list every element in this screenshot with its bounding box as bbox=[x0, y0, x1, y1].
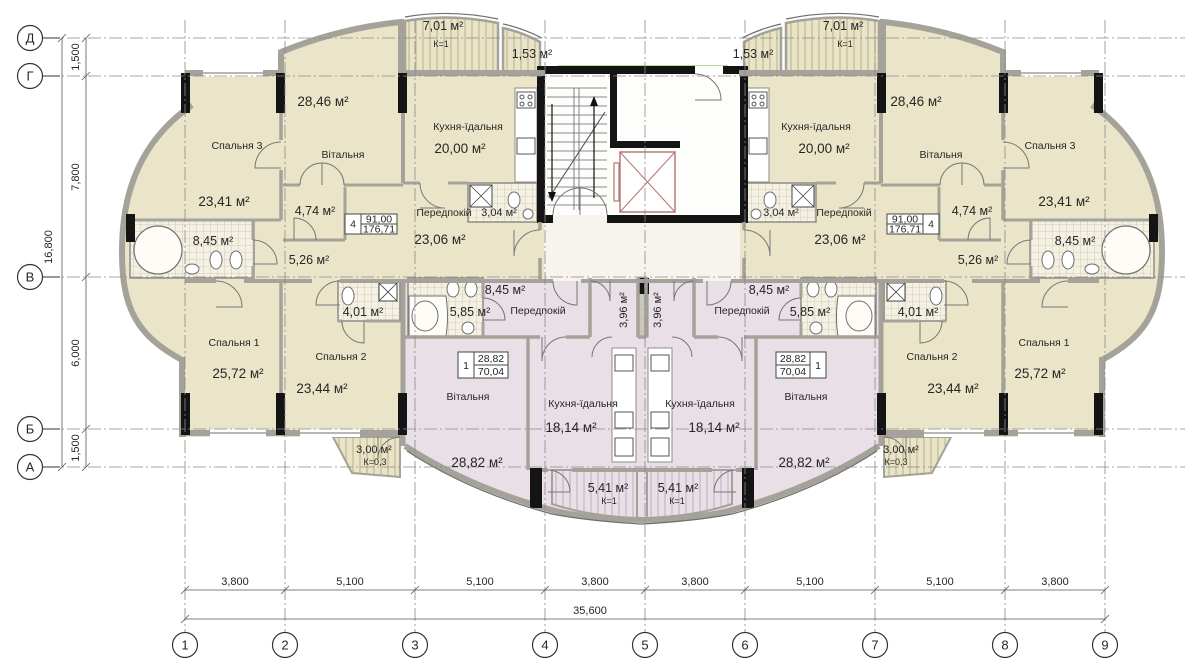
storage-area-r: 4,74 м² bbox=[952, 204, 993, 218]
bedroom1-area-r: 25,72 м² bbox=[1014, 366, 1066, 381]
bath-area-r: 8,45 м² bbox=[1055, 234, 1096, 248]
dim-col-2: 5,100 bbox=[336, 576, 364, 588]
t1-bath-area-l: 5,85 м² bbox=[450, 305, 491, 319]
balcony-large-k-r: К=1 bbox=[837, 39, 853, 49]
balcony-rear-k-r: К=0,3 bbox=[884, 457, 907, 467]
unit4-total: 176,71 bbox=[363, 224, 395, 236]
storage-area-l: 4,74 м² bbox=[295, 204, 336, 218]
balcony-small-area-r: 1,53 м² bbox=[733, 47, 774, 61]
axis-label-a: А bbox=[26, 460, 35, 475]
t1-hall-area-r: 8,45 м² bbox=[749, 283, 790, 297]
t1-living-name-l: Вітальня bbox=[447, 391, 490, 403]
unit4-number: 4 bbox=[350, 219, 356, 231]
corridor-area-r: 5,26 м² bbox=[958, 253, 999, 267]
hall-name-l: Передпокій bbox=[416, 207, 471, 219]
entrance-lobby bbox=[544, 223, 740, 281]
dim-row-2: 7,800 bbox=[70, 163, 82, 191]
kitchen-area-r: 20,00 м² bbox=[798, 141, 850, 156]
t1-corridor-area-r: 3,96 м² bbox=[652, 292, 664, 328]
bedroom2-area-l: 23,44 м² bbox=[296, 381, 348, 396]
axis-label-5: 5 bbox=[641, 638, 648, 653]
kitchen-name-r: Кухня-їдальня bbox=[781, 121, 851, 133]
living-area-r: 28,46 м² bbox=[890, 94, 942, 109]
dim-row-4: 1,500 bbox=[70, 434, 82, 462]
axis-label-3: 3 bbox=[411, 638, 418, 653]
unit1-living: 28,82 bbox=[478, 353, 504, 365]
dim-col-5: 3,800 bbox=[681, 576, 709, 588]
bedroom1-area-l: 25,72 м² bbox=[212, 366, 264, 381]
axis-label-9: 9 bbox=[1101, 638, 1108, 653]
dim-col-8: 3,800 bbox=[1041, 576, 1069, 588]
kitchen-area-l: 20,00 м² bbox=[434, 141, 486, 156]
t1-balcony-area-r: 5,41 м² bbox=[658, 481, 699, 495]
t1-hall-name-l: Передпокій bbox=[510, 305, 565, 317]
living-area-l: 28,46 м² bbox=[297, 94, 349, 109]
unit1-number: 1 bbox=[463, 360, 469, 372]
bath2-area-l: 4,01 м² bbox=[343, 305, 384, 319]
axis-label-g: Г bbox=[26, 69, 33, 84]
axis-label-b: Б bbox=[26, 422, 35, 437]
axis-label-8: 8 bbox=[1001, 638, 1008, 653]
t1-kitchen-name-l: Кухня-їдальня bbox=[548, 398, 618, 410]
balcony-large-area-r: 7,01 м² bbox=[823, 19, 864, 33]
t1-hall-area-l: 8,45 м² bbox=[485, 283, 526, 297]
bedroom3-area-r: 23,41 м² bbox=[1038, 194, 1090, 209]
floor-plan-sheet: Д Г В Б А 1 2 3 4 5 6 7 8 9 1,500 7,800 … bbox=[0, 0, 1200, 661]
unit4-number: 4 bbox=[928, 219, 934, 231]
dim-col-6: 5,100 bbox=[796, 576, 824, 588]
bedroom1-name-r: Спальня 1 bbox=[1019, 337, 1070, 349]
bath-area-l: 8,45 м² bbox=[193, 234, 234, 248]
t1-bath-area-r: 5,85 м² bbox=[790, 305, 831, 319]
bedroom3-name-r: Спальня 3 bbox=[1025, 140, 1076, 152]
unit1-total: 70,04 bbox=[478, 366, 504, 378]
dim-col-3: 5,100 bbox=[466, 576, 494, 588]
axis-label-1: 1 bbox=[181, 638, 188, 653]
dim-col-7: 5,100 bbox=[926, 576, 954, 588]
balcony-small-area-l: 1,53 м² bbox=[512, 47, 553, 61]
axis-label-2: 2 bbox=[281, 638, 288, 653]
living-name-r: Вітальня bbox=[920, 149, 963, 161]
unit4-total: 176,71 bbox=[889, 224, 921, 236]
bath2-area-r: 4,01 м² bbox=[898, 305, 939, 319]
balcony-rear-k-l: К=0,3 bbox=[363, 457, 386, 467]
floor-plan-drawing: Д Г В Б А 1 2 3 4 5 6 7 8 9 1,500 7,800 … bbox=[0, 0, 1200, 661]
dim-col-4: 3,800 bbox=[581, 576, 609, 588]
balcony-large-area-l: 7,01 м² bbox=[423, 19, 464, 33]
dim-row-1: 1,500 bbox=[70, 43, 82, 71]
t1-living-name-r: Вітальня bbox=[785, 391, 828, 403]
t1-living-area-l: 28,82 м² bbox=[451, 455, 503, 470]
balcony-rear-area-l: 3,00 м² bbox=[356, 444, 392, 456]
bedroom3-name-l: Спальня 3 bbox=[212, 140, 263, 152]
wc-area-l: 3,04 м² bbox=[481, 207, 517, 219]
axis-label-4: 4 bbox=[541, 638, 548, 653]
bedroom2-name-r: Спальня 2 bbox=[907, 351, 958, 363]
bedroom2-area-r: 23,44 м² bbox=[927, 381, 979, 396]
dim-row-3: 6,000 bbox=[70, 339, 82, 367]
t1-balcony-area-l: 5,41 м² bbox=[588, 481, 629, 495]
elevator-shaft bbox=[614, 152, 675, 212]
t1-balcony-k-r: К=1 bbox=[669, 496, 685, 506]
dim-col-1: 3,800 bbox=[221, 576, 249, 588]
unit1-number: 1 bbox=[815, 360, 821, 372]
unit1-total: 70,04 bbox=[780, 366, 806, 378]
t1-kitchen-name-r: Кухня-їдальня bbox=[665, 398, 735, 410]
unit1-living: 28,82 bbox=[780, 353, 806, 365]
kitchen-name-l: Кухня-їдальня bbox=[433, 121, 503, 133]
bedroom3-area-l: 23,41 м² bbox=[198, 194, 250, 209]
balcony-large-k-l: К=1 bbox=[433, 39, 449, 49]
living-name-l: Вітальня bbox=[322, 149, 365, 161]
bedroom2-name-l: Спальня 2 bbox=[316, 351, 367, 363]
axis-label-d: Д bbox=[26, 31, 35, 46]
hall-area-r: 23,06 м² bbox=[814, 232, 866, 247]
t1-hall-name-r: Передпокій bbox=[714, 305, 769, 317]
axis-label-v: В bbox=[26, 270, 35, 285]
balcony-rear-area-r: 3,00 м² bbox=[883, 444, 919, 456]
dim-col-total: 35,600 bbox=[573, 605, 607, 617]
t1-balcony-k-l: К=1 bbox=[601, 496, 617, 506]
t1-kitchen-area-l: 18,14 м² bbox=[545, 420, 597, 435]
hall-area-l: 23,06 м² bbox=[414, 232, 466, 247]
corridor-area-l: 5,26 м² bbox=[289, 253, 330, 267]
t1-corridor-area-l: 3,96 м² bbox=[618, 292, 630, 328]
elevator-door bbox=[614, 163, 619, 201]
dim-row-total: 16,800 bbox=[43, 230, 55, 264]
hall-name-r: Передпокій bbox=[816, 207, 871, 219]
axis-label-6: 6 bbox=[741, 638, 748, 653]
axis-label-7: 7 bbox=[871, 638, 878, 653]
t1-kitchen-area-r: 18,14 м² bbox=[688, 420, 740, 435]
wc-area-r: 3,04 м² bbox=[763, 207, 799, 219]
bedroom1-name-l: Спальня 1 bbox=[209, 337, 260, 349]
t1-living-area-r: 28,82 м² bbox=[778, 455, 830, 470]
